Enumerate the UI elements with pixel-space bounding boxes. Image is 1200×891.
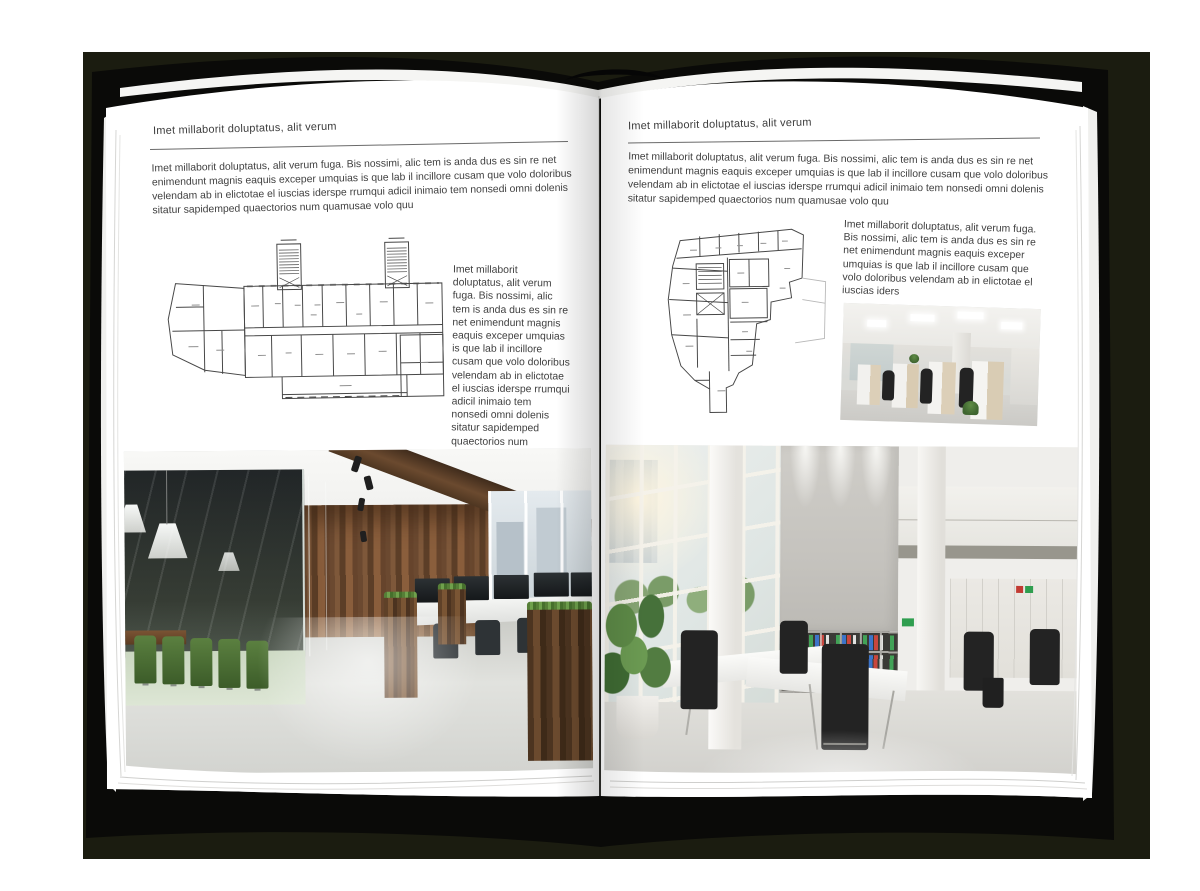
right-plan-caption: Imet millaborit doluptatus, alit verum f…	[842, 218, 1050, 303]
green-chair	[134, 635, 156, 683]
wood-planter	[527, 609, 593, 761]
left-page-header: Imet millaborit doluptatus, alit verum	[153, 115, 573, 137]
spotlight-glow	[790, 446, 821, 509]
office-chair	[920, 369, 933, 404]
safety-sign-green	[1025, 586, 1033, 593]
monitor	[494, 574, 529, 598]
monitor	[533, 573, 568, 597]
office-photo-small	[840, 303, 1041, 426]
monitor	[571, 572, 593, 596]
potted-plant-leaves	[604, 590, 680, 709]
floor-plan-left	[150, 223, 451, 426]
green-chair	[191, 638, 213, 686]
right-header-rule	[628, 137, 1040, 143]
office-chair	[1029, 628, 1060, 684]
office-photo-dark-wood	[124, 448, 593, 773]
safety-sign-red	[1016, 586, 1024, 593]
exit-sign	[902, 618, 913, 626]
spotlight-glow	[860, 446, 891, 509]
spotlight-glow	[825, 446, 856, 509]
ceiling-light	[1001, 322, 1023, 330]
corridor	[1010, 348, 1039, 405]
potted-plant	[963, 400, 979, 415]
green-chair	[219, 639, 241, 687]
office-chair	[882, 370, 895, 401]
office-chair	[680, 630, 718, 709]
left-plan-caption: Imet millaborit doluptatus, alit verum f…	[451, 263, 571, 462]
green-chair	[163, 636, 185, 684]
white-column	[916, 446, 946, 690]
right-page-intro: Imet millaborit doluptatus, alit verum f…	[628, 150, 1053, 211]
plant-pot	[616, 696, 659, 739]
floor-reflection	[699, 729, 982, 777]
right-page-header: Imet millaborit doluptatus, alit verum	[628, 112, 1048, 133]
desk-cabinet	[892, 363, 919, 408]
waste-bin	[982, 678, 1003, 708]
concrete-wall	[780, 446, 899, 631]
floor-light-patch	[256, 617, 481, 767]
ceiling-light	[910, 314, 934, 322]
office-chair	[779, 621, 808, 674]
track-light	[360, 530, 368, 542]
desk-cabinet	[856, 364, 881, 404]
ceiling-light	[958, 311, 984, 319]
office-photo-atrium	[604, 445, 1078, 777]
left-page-intro: Imet millaborit doluptatus, alit verum f…	[151, 154, 576, 219]
ceiling-light	[867, 320, 887, 328]
floor-plan-right	[647, 221, 836, 424]
left-header-rule	[150, 141, 568, 150]
